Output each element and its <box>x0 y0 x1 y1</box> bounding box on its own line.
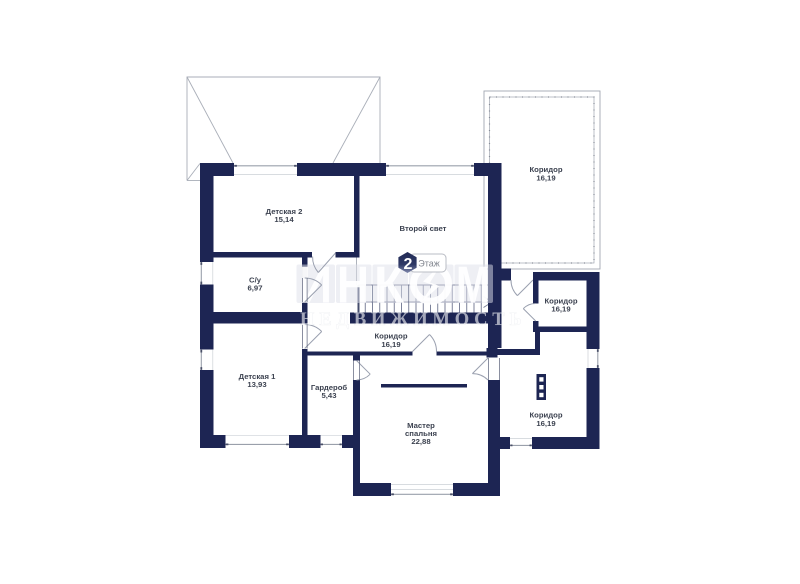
svg-text:16,19: 16,19 <box>551 305 570 314</box>
svg-text:16,19: 16,19 <box>536 174 555 183</box>
svg-text:Н: Н <box>337 257 369 315</box>
svg-text:Этаж: Этаж <box>418 259 440 269</box>
svg-text:2: 2 <box>404 256 413 273</box>
svg-text:16,19: 16,19 <box>381 340 400 349</box>
svg-text:13,93: 13,93 <box>247 380 266 389</box>
svg-text:НЕДВИЖИМОСТЬ: НЕДВИЖИМОСТЬ <box>300 310 526 330</box>
svg-text:15,14: 15,14 <box>274 215 294 224</box>
svg-text:6,97: 6,97 <box>248 284 263 293</box>
svg-text:И: И <box>299 257 332 315</box>
svg-text:16,19: 16,19 <box>536 419 555 428</box>
svg-text:5,43: 5,43 <box>322 391 337 400</box>
svg-text:Второй свет: Второй свет <box>400 224 447 233</box>
svg-text:М: М <box>456 257 490 315</box>
svg-text:22,88: 22,88 <box>411 437 431 446</box>
